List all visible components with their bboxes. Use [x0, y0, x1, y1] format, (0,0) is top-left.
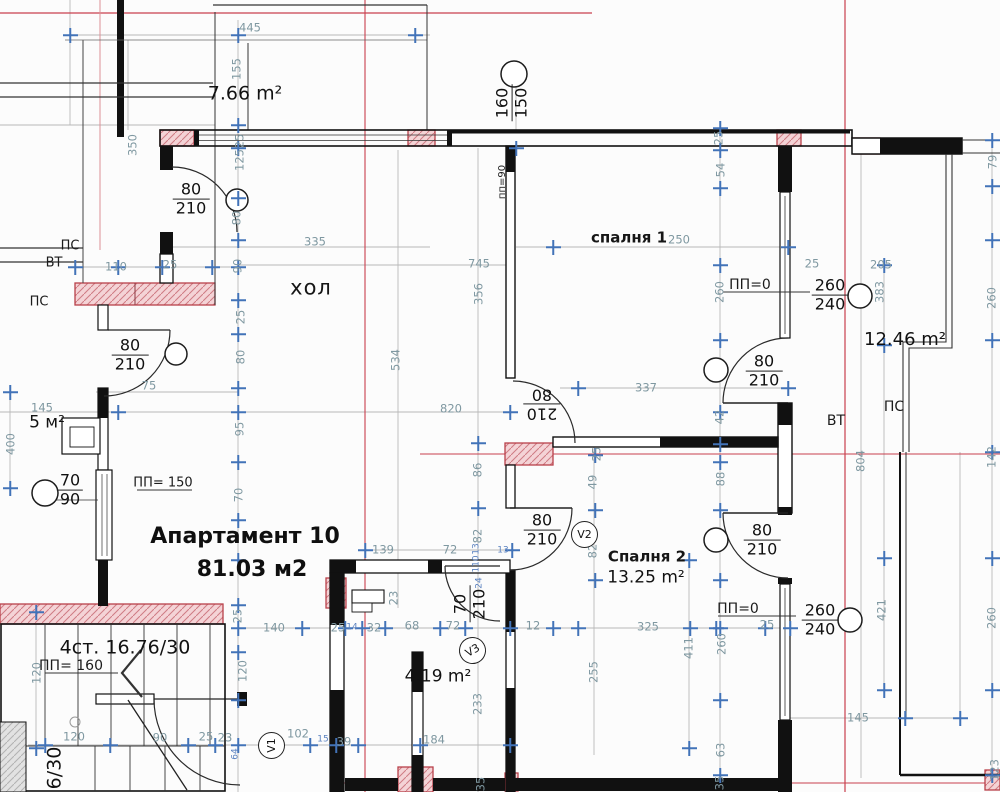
highlighted-walls: [0, 130, 1000, 792]
marker-circles: [32, 61, 872, 727]
dimension-lines: [0, 0, 992, 792]
door-arcs: [104, 167, 788, 785]
red-axis-lines: [0, 0, 1000, 792]
floorplan-drawing: [0, 0, 1000, 792]
walls: [0, 0, 1000, 792]
floorplan-canvas: 7.66 m²холспалня 1Спалня 213.25 m²12.46 …: [0, 0, 1000, 792]
